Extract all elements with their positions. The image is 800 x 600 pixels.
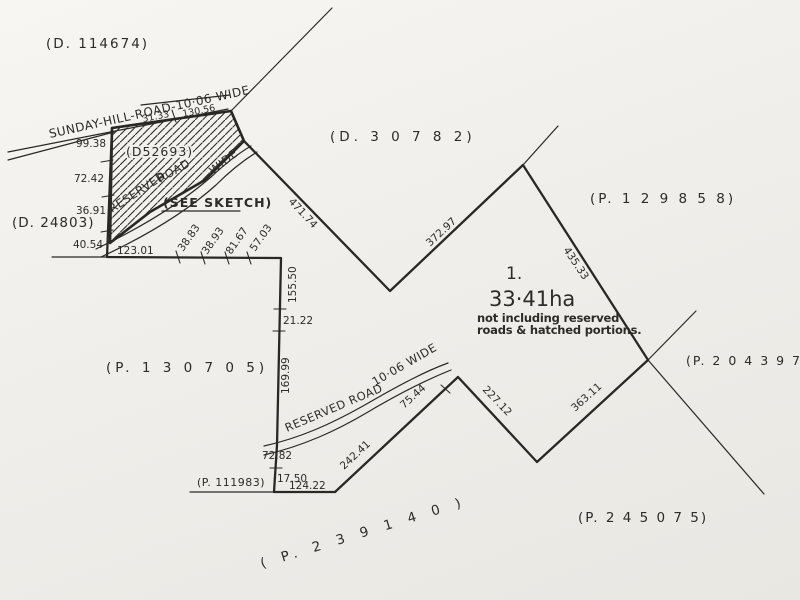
measure-36-91: 36.91: [76, 205, 106, 217]
measure-72-42: 72.42: [74, 173, 104, 185]
measure-57-03: 57.03: [248, 222, 275, 254]
label-parcel-p130705: (P. 1 3 0 7 0 5): [106, 360, 268, 376]
lot-area: 33·41ha: [489, 287, 575, 311]
plan-drawing: (D. 114674) (D. 3 0 7 8 2) (P. 1 2 9 8 5…: [0, 0, 800, 600]
measure-38-93: 38.93: [200, 225, 227, 257]
label-see-sketch: (SEE SKETCH): [163, 195, 272, 210]
label-parcel-p129858: (P. 1 2 9 8 5 8): [590, 191, 736, 207]
label-reserved-road-lower-2: 10·06 WIDE: [370, 340, 440, 388]
lot-number: 1.: [506, 264, 522, 284]
lot-note-line2: roads & hatched portions.: [477, 323, 641, 337]
measure-123-01: 123.01: [117, 245, 154, 257]
survey-plan-canvas: (D. 114674) (D. 3 0 7 8 2) (P. 1 2 9 8 5…: [0, 0, 800, 600]
label-parcel-d24803: (D. 24803): [12, 215, 94, 231]
label-parcel-d114674: (D. 114674): [46, 36, 149, 52]
measure-40-54: 40.54: [73, 239, 103, 251]
measure-99-38: 99.38: [76, 138, 106, 150]
measure-72-82: 72.82: [262, 450, 292, 462]
measure-227-12: 227.12: [480, 384, 514, 419]
measure-155-50: 155.50: [287, 266, 299, 303]
label-parcel-p111983: (P. 111983): [197, 476, 265, 489]
measure-169-99: 169.99: [280, 357, 292, 394]
measure-124-22: 124.22: [289, 480, 326, 492]
survey-extension-lines: [52, 8, 764, 494]
label-parcel-p204397: (P. 2 0 4 3 9 7): [686, 353, 800, 368]
measure-38-83: 38.83: [176, 222, 203, 254]
label-parcel-p245075: (P. 2 4 5 0 7 5): [578, 510, 708, 526]
measure-21-22: 21.22: [283, 315, 313, 327]
measure-242-41: 242.41: [338, 438, 373, 472]
measure-75-44: 75.44: [398, 382, 429, 411]
label-reserved-road-lower-1: RESERVED ROAD: [283, 381, 385, 435]
label-parcel-p239140: ( P. 2 3 9 1 4 0 ): [258, 494, 468, 572]
measure-363-11: 363.11: [569, 381, 604, 415]
measure-372-97: 372.97: [424, 215, 459, 249]
lot-annotation: 1. 33·41ha not including reserved roads …: [477, 264, 641, 337]
label-parcel-d30782: (D. 3 0 7 8 2): [330, 129, 476, 145]
